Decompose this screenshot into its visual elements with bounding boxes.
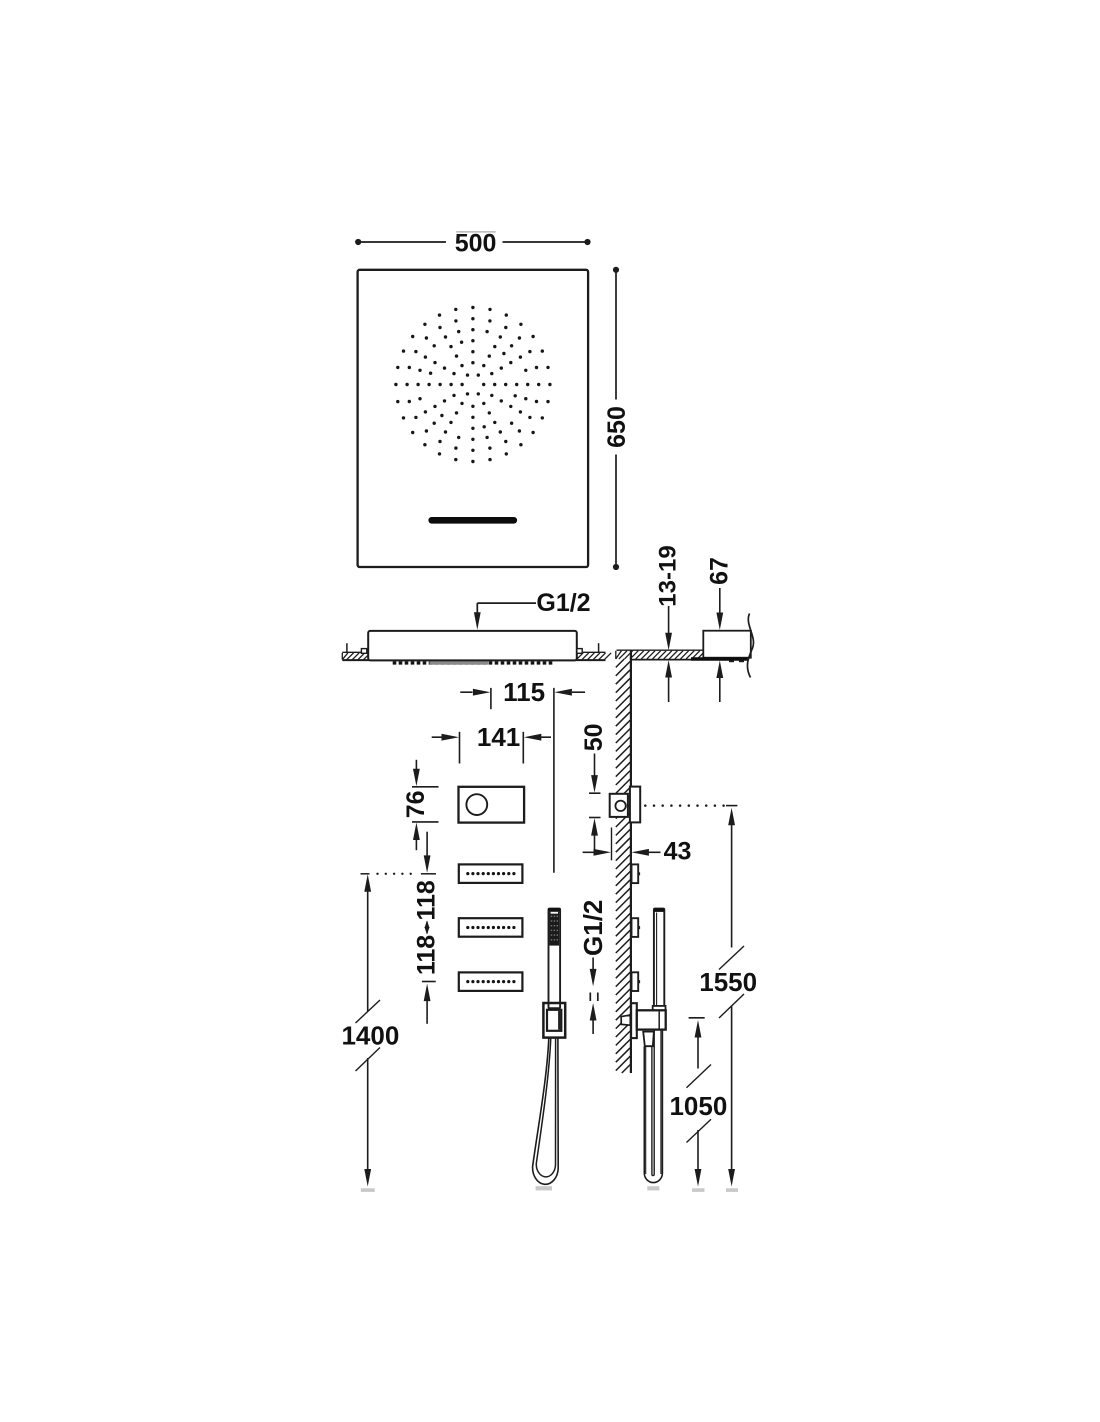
svg-text:1550: 1550 (699, 967, 757, 997)
svg-text:118: 118 (413, 935, 441, 975)
svg-text:G1/2: G1/2 (536, 589, 590, 617)
svg-text:118: 118 (413, 880, 441, 920)
svg-text:500: 500 (455, 229, 497, 257)
svg-text:1050: 1050 (669, 1091, 727, 1121)
svg-text:50: 50 (580, 723, 608, 751)
svg-text:G1/2: G1/2 (578, 900, 608, 956)
svg-text:67: 67 (706, 557, 734, 585)
svg-text:650: 650 (603, 406, 631, 448)
svg-text:13-19: 13-19 (655, 545, 682, 606)
svg-text:76: 76 (402, 790, 430, 818)
svg-text:1400: 1400 (341, 1021, 399, 1051)
svg-text:43: 43 (664, 837, 692, 865)
svg-text:115: 115 (503, 677, 545, 707)
svg-text:141: 141 (477, 722, 520, 752)
